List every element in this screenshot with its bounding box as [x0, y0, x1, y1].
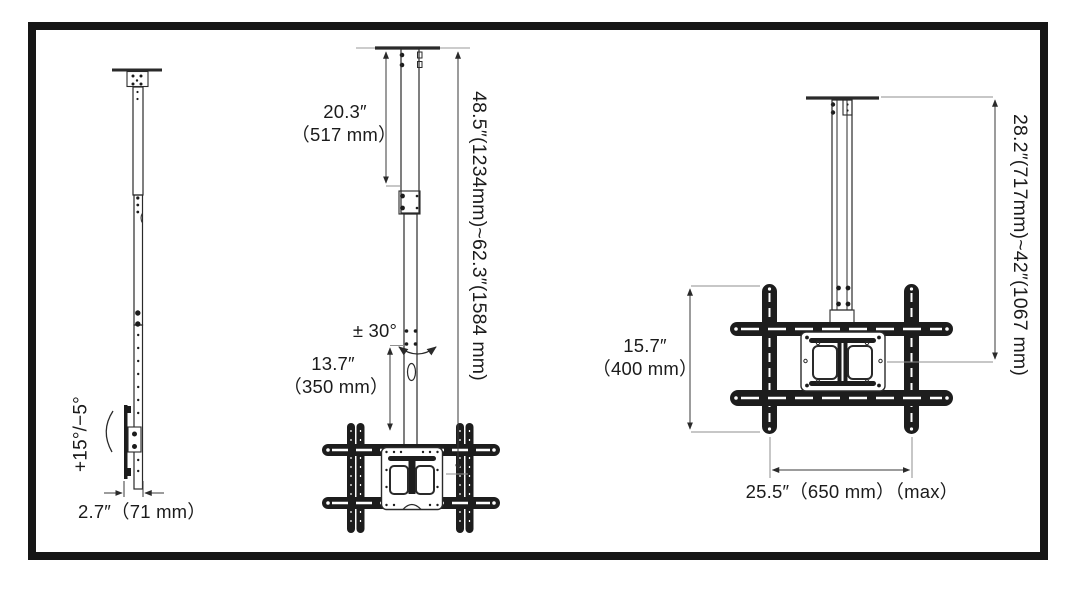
side-tilt-label: +15°/−5°	[72, 396, 91, 472]
front-upper-pole-inches-label: 20.3″	[323, 103, 367, 122]
front-overall-range-label: 48.5″(1234mm)~62.3″(1584 mm)	[468, 91, 488, 381]
front-retracted-view-drawing	[690, 97, 995, 478]
front-swivel-label: ± 30°	[353, 322, 397, 341]
right-bracket-height-inches-label: 15.7″	[623, 337, 667, 356]
front-lower-pole-inches-label: 13.7″	[311, 355, 355, 374]
diagram-canvas: +15°/−5° 2.7″（71 mm） 20.3″ （517 mm） 48.5…	[0, 0, 1082, 590]
side-tv-plate	[124, 405, 128, 479]
tilt-arc	[106, 411, 113, 452]
right-bracket-height-mm-label: （400 mm）	[592, 360, 697, 379]
right-bracket-width-label: 25.5″（650 mm）（max）	[746, 483, 959, 502]
front-pole-outer	[401, 49, 419, 213]
right-drop-range-label: 28.2″(717mm)~42″(1067 mm)	[1009, 114, 1029, 376]
front-upper-pole-mm-label: （517 mm）	[291, 126, 396, 145]
right-pole	[832, 100, 852, 310]
pole-slot	[408, 364, 416, 381]
front-lower-pole-mm-label: （350 mm）	[283, 378, 388, 397]
side-pole-upper	[133, 87, 143, 195]
side-view-drawing	[104, 70, 164, 497]
side-pole-lower	[134, 325, 143, 489]
side-depth-label: 2.7″（71 mm）	[78, 503, 206, 522]
